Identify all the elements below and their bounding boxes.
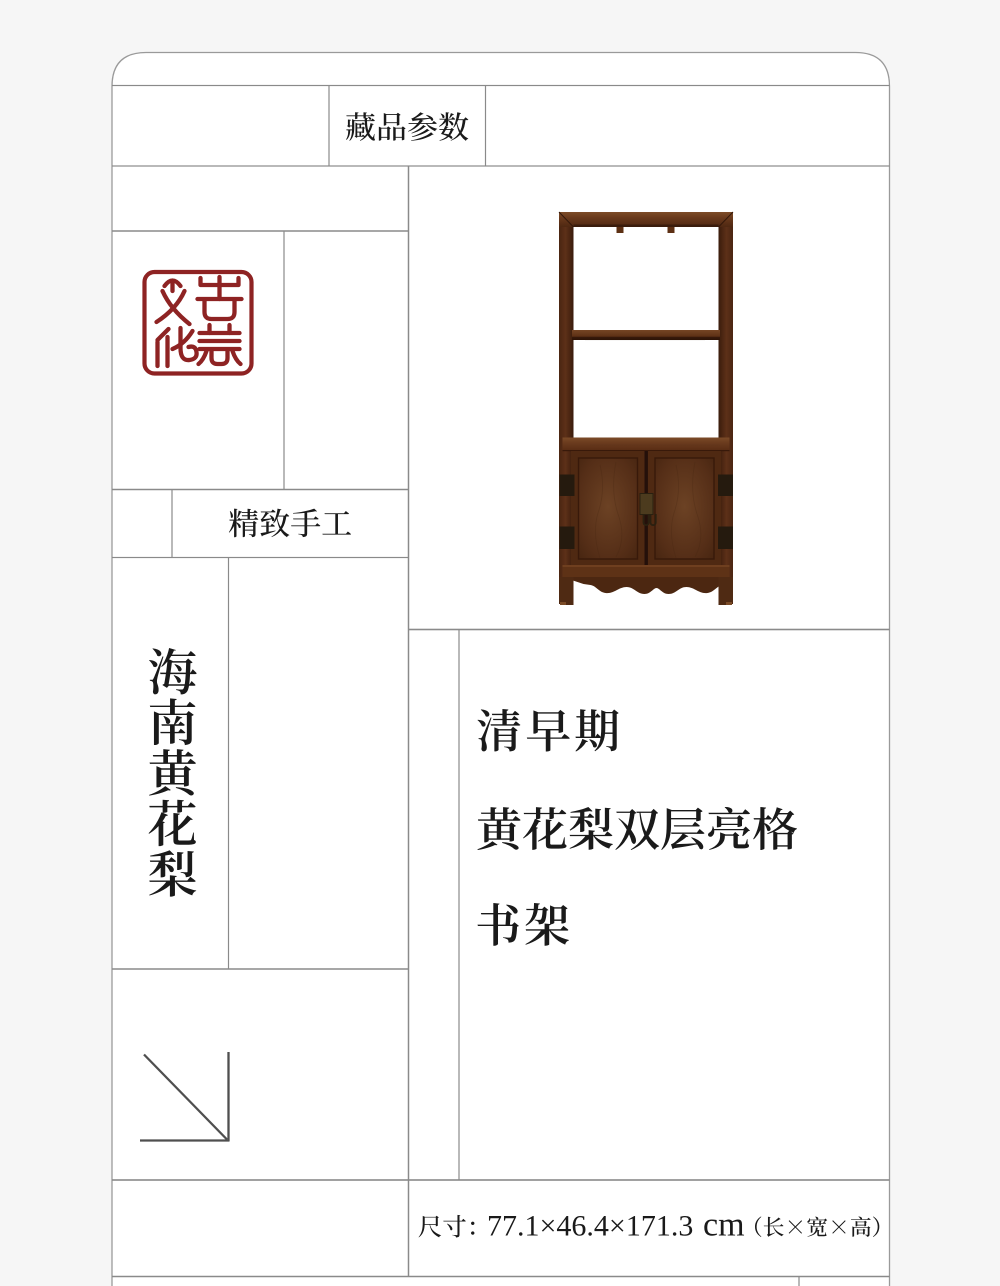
svg-text:77.1×46.4×171.3: 77.1×46.4×171.3: [487, 1210, 693, 1243]
svg-text:cm: cm: [703, 1207, 745, 1244]
